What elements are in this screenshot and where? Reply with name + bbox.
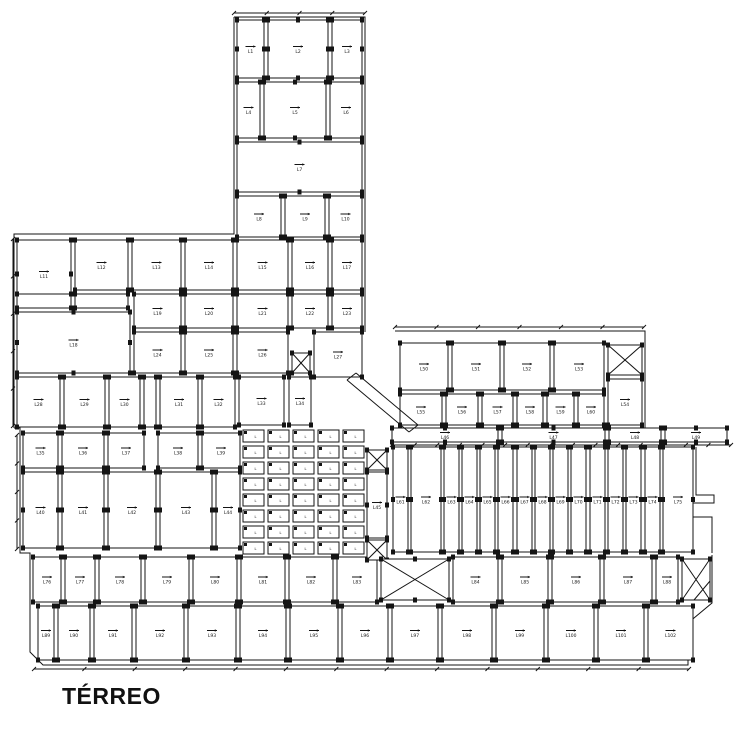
grid-cell: L bbox=[318, 526, 339, 538]
grid-cell: L bbox=[318, 446, 339, 458]
column-marker bbox=[290, 238, 294, 243]
grid-cell: L bbox=[318, 510, 339, 522]
room-label: L95 bbox=[310, 633, 318, 639]
column-marker bbox=[606, 423, 610, 428]
column-marker bbox=[103, 425, 107, 430]
column-marker bbox=[235, 18, 239, 23]
column-marker bbox=[286, 292, 290, 297]
column-marker bbox=[596, 604, 600, 609]
room-label: L8 bbox=[256, 217, 262, 223]
column-marker bbox=[546, 604, 550, 609]
room: L33 bbox=[237, 375, 286, 428]
column-marker bbox=[451, 600, 455, 605]
room-label: L18 bbox=[69, 343, 77, 349]
room-label: L bbox=[280, 547, 282, 551]
column-marker bbox=[191, 600, 195, 605]
column-marker bbox=[179, 292, 183, 297]
column-marker bbox=[386, 658, 390, 663]
column-marker bbox=[588, 550, 592, 555]
room: L2 bbox=[266, 18, 330, 81]
column-marker bbox=[326, 47, 330, 52]
room: L78 bbox=[97, 555, 143, 605]
room: L44 bbox=[214, 470, 242, 551]
grid-cell: L bbox=[243, 510, 264, 522]
room-label: L74 bbox=[648, 500, 656, 506]
column-marker bbox=[550, 600, 554, 605]
column-marker bbox=[725, 440, 729, 445]
column-marker bbox=[360, 80, 364, 85]
column-marker bbox=[606, 497, 610, 502]
room-label: L bbox=[255, 531, 257, 535]
column-marker bbox=[498, 341, 502, 346]
room-label: L35 bbox=[36, 451, 44, 457]
column-marker bbox=[134, 604, 138, 609]
column-marker bbox=[340, 658, 344, 663]
column-marker bbox=[262, 47, 266, 52]
room-label: L28 bbox=[34, 402, 42, 408]
column-marker bbox=[379, 598, 383, 603]
column-marker bbox=[639, 550, 643, 555]
column-marker bbox=[183, 371, 187, 376]
room-label: L60 bbox=[587, 410, 595, 416]
room-label: L82 bbox=[307, 580, 315, 586]
room-label: L92 bbox=[156, 633, 164, 639]
column-marker bbox=[379, 557, 383, 562]
column-marker bbox=[460, 497, 464, 502]
grid-cell: L bbox=[318, 494, 339, 506]
room: L47 bbox=[500, 426, 607, 445]
column-marker bbox=[186, 658, 190, 663]
room: L9 bbox=[283, 194, 327, 240]
column-marker bbox=[36, 604, 40, 609]
grid-cell: L bbox=[318, 542, 339, 554]
column-marker bbox=[551, 550, 555, 555]
column-marker bbox=[326, 18, 330, 23]
grid-cell: L bbox=[343, 542, 364, 554]
room-label: L80 bbox=[211, 580, 219, 586]
room: L65 bbox=[478, 445, 497, 555]
room-label: L83 bbox=[353, 580, 361, 586]
column-marker bbox=[480, 423, 484, 428]
column-marker bbox=[502, 388, 506, 393]
column-marker bbox=[624, 497, 628, 502]
column-marker bbox=[106, 508, 110, 513]
grid-cell: L bbox=[268, 430, 289, 442]
column-marker bbox=[97, 600, 101, 605]
room: L24 bbox=[132, 330, 183, 376]
column-marker bbox=[139, 555, 143, 560]
dimension-line bbox=[32, 667, 691, 671]
column-marker bbox=[360, 18, 364, 23]
column-marker bbox=[183, 292, 187, 297]
column-marker bbox=[266, 76, 270, 81]
column-marker bbox=[52, 658, 56, 663]
room: L95 bbox=[288, 604, 340, 663]
column-marker bbox=[606, 343, 610, 348]
column-marker bbox=[139, 600, 143, 605]
column-marker bbox=[460, 550, 464, 555]
room-label: L89 bbox=[42, 633, 50, 639]
room: L66 bbox=[496, 445, 515, 555]
column-marker bbox=[533, 550, 537, 555]
room-label: L32 bbox=[214, 402, 222, 408]
column-marker bbox=[235, 47, 239, 52]
room: L27 bbox=[312, 330, 364, 380]
column-marker bbox=[106, 431, 110, 436]
column-marker bbox=[238, 546, 242, 551]
room-label: L bbox=[280, 435, 282, 439]
column-marker bbox=[680, 557, 684, 562]
column-marker bbox=[60, 470, 64, 475]
column-marker bbox=[309, 423, 313, 428]
room-label: L24 bbox=[153, 353, 161, 359]
column-marker bbox=[15, 375, 19, 380]
room-label: L47 bbox=[549, 435, 557, 441]
column-marker bbox=[93, 555, 97, 560]
dimension-line bbox=[393, 325, 646, 329]
column-marker bbox=[239, 555, 243, 560]
column-marker bbox=[691, 604, 695, 609]
room: L93 bbox=[186, 604, 238, 663]
column-marker bbox=[102, 431, 106, 436]
room-label: L bbox=[330, 515, 332, 519]
column-marker bbox=[290, 292, 294, 297]
grid-cell: L bbox=[243, 430, 264, 442]
column-marker bbox=[126, 292, 130, 297]
room: L52 bbox=[502, 341, 552, 393]
column-marker bbox=[447, 557, 451, 562]
room-label: L bbox=[305, 515, 307, 519]
column-marker bbox=[266, 47, 270, 52]
room: L49 bbox=[663, 426, 729, 445]
room: L80 bbox=[191, 555, 239, 605]
column-marker bbox=[235, 292, 239, 297]
room: L45 bbox=[365, 470, 389, 541]
column-marker bbox=[545, 392, 549, 397]
column-marker bbox=[360, 47, 364, 52]
room-label: L17 bbox=[343, 265, 351, 271]
room-label: L94 bbox=[259, 633, 267, 639]
room: L102 bbox=[646, 604, 695, 663]
column-marker bbox=[545, 423, 549, 428]
room: L82 bbox=[287, 555, 335, 605]
room-label: L2 bbox=[295, 49, 301, 55]
column-marker bbox=[200, 466, 204, 471]
column-marker bbox=[210, 508, 214, 513]
column-marker bbox=[130, 658, 134, 663]
column-marker bbox=[515, 392, 519, 397]
room-label: L12 bbox=[97, 265, 105, 271]
column-marker bbox=[15, 292, 19, 297]
column-marker bbox=[546, 658, 550, 663]
room bbox=[15, 292, 73, 311]
room: L61 bbox=[391, 445, 410, 555]
column-marker bbox=[385, 468, 389, 473]
column-marker bbox=[288, 658, 292, 663]
column-marker bbox=[36, 658, 40, 663]
column-marker bbox=[542, 604, 546, 609]
column-marker bbox=[92, 658, 96, 663]
column-marker bbox=[552, 388, 556, 393]
column-marker bbox=[238, 470, 242, 475]
column-marker bbox=[365, 448, 369, 453]
grid-cell: L bbox=[243, 542, 264, 554]
column-marker bbox=[326, 238, 330, 243]
room: L13 bbox=[130, 238, 183, 293]
room: L74 bbox=[643, 445, 662, 555]
room: L35 bbox=[21, 431, 60, 471]
room: L57 bbox=[480, 392, 515, 428]
column-marker bbox=[375, 600, 379, 605]
column-marker bbox=[511, 392, 515, 397]
room: L18 bbox=[15, 310, 132, 376]
column-marker bbox=[69, 238, 73, 243]
room-label: L81 bbox=[259, 580, 267, 586]
column-marker bbox=[646, 604, 650, 609]
column-marker bbox=[542, 658, 546, 663]
grid-cell: L bbox=[343, 462, 364, 474]
column-marker bbox=[440, 658, 444, 663]
stair-shaft-x bbox=[606, 343, 644, 378]
column-marker bbox=[511, 550, 515, 555]
room: L70 bbox=[569, 445, 588, 555]
grid-cell: L bbox=[293, 526, 314, 538]
column-marker bbox=[21, 546, 25, 551]
room: L60 bbox=[576, 392, 606, 428]
room-label: L73 bbox=[629, 500, 637, 506]
column-marker bbox=[676, 555, 680, 560]
room: L62 bbox=[409, 445, 443, 555]
column-marker bbox=[258, 136, 262, 141]
room-label: L10 bbox=[341, 217, 349, 223]
column-marker bbox=[602, 600, 606, 605]
grid-cell: L bbox=[293, 478, 314, 490]
column-marker bbox=[546, 555, 550, 560]
column-marker bbox=[233, 375, 237, 380]
room: L25 bbox=[183, 330, 235, 376]
column-marker bbox=[442, 497, 446, 502]
column-marker bbox=[72, 371, 76, 376]
column-marker bbox=[500, 440, 504, 445]
column-marker bbox=[196, 425, 200, 430]
column-marker bbox=[293, 136, 297, 141]
room-label: L bbox=[305, 467, 307, 471]
room-label: L45 bbox=[373, 505, 381, 511]
room-label: L bbox=[255, 435, 257, 439]
column-marker bbox=[15, 272, 19, 277]
column-marker bbox=[234, 658, 238, 663]
column-marker bbox=[498, 388, 502, 393]
room: L89 bbox=[36, 604, 56, 663]
room: L50 bbox=[398, 341, 450, 393]
room-label: L bbox=[330, 467, 332, 471]
column-marker bbox=[290, 371, 294, 376]
room-label: L100 bbox=[565, 633, 576, 639]
column-marker bbox=[154, 425, 158, 430]
column-marker bbox=[446, 341, 450, 346]
room-label: L bbox=[305, 547, 307, 551]
room-label: L55 bbox=[417, 410, 425, 416]
column-marker bbox=[602, 341, 606, 346]
room: L85 bbox=[500, 555, 550, 605]
column-marker bbox=[132, 292, 136, 297]
column-marker bbox=[59, 555, 63, 560]
column-marker bbox=[15, 310, 19, 315]
room-label: L39 bbox=[217, 451, 225, 457]
column-marker bbox=[551, 497, 555, 502]
room-label: L26 bbox=[258, 353, 266, 359]
column-marker bbox=[511, 423, 515, 428]
room-label: L9 bbox=[302, 217, 308, 223]
column-marker bbox=[576, 392, 580, 397]
column-marker bbox=[279, 235, 283, 240]
column-marker bbox=[330, 292, 334, 297]
column-marker bbox=[132, 330, 136, 335]
column-marker bbox=[515, 423, 519, 428]
column-marker bbox=[639, 497, 643, 502]
column-marker bbox=[237, 375, 241, 380]
room-label: L4 bbox=[246, 110, 252, 116]
room: L51 bbox=[450, 341, 502, 393]
column-marker bbox=[607, 440, 611, 445]
grid-cell: L bbox=[268, 462, 289, 474]
room-label: L bbox=[305, 451, 307, 455]
column-marker bbox=[398, 341, 402, 346]
column-marker bbox=[511, 497, 515, 502]
column-marker bbox=[21, 470, 25, 475]
grid-cell: L bbox=[343, 478, 364, 490]
room: L75 bbox=[661, 445, 695, 555]
column-marker bbox=[126, 238, 130, 243]
column-marker bbox=[308, 371, 312, 376]
stair-shaft-x bbox=[680, 557, 712, 603]
column-marker bbox=[106, 470, 110, 475]
room-label: L7 bbox=[297, 167, 303, 173]
column-marker bbox=[444, 392, 448, 397]
column-marker bbox=[598, 555, 602, 560]
column-marker bbox=[496, 497, 500, 502]
column-marker bbox=[130, 238, 134, 243]
room-label: L21 bbox=[258, 311, 266, 317]
dimension-line bbox=[232, 11, 367, 15]
column-marker bbox=[102, 470, 106, 475]
room: L3 bbox=[330, 18, 364, 81]
room-label: L49 bbox=[692, 435, 700, 441]
column-marker bbox=[650, 555, 654, 560]
column-marker bbox=[496, 550, 500, 555]
column-marker bbox=[130, 604, 134, 609]
room: L46 bbox=[390, 426, 500, 445]
room: L4 bbox=[235, 80, 262, 141]
room-label: L52 bbox=[523, 367, 531, 373]
room-label: L bbox=[305, 531, 307, 535]
grid-cell: L bbox=[243, 526, 264, 538]
column-marker bbox=[331, 555, 335, 560]
column-marker bbox=[602, 555, 606, 560]
column-marker bbox=[238, 431, 242, 436]
room-label: L56 bbox=[458, 410, 466, 416]
room-label: L bbox=[355, 499, 357, 503]
column-marker bbox=[385, 503, 389, 508]
column-marker bbox=[15, 425, 19, 430]
column-marker bbox=[340, 604, 344, 609]
column-marker bbox=[360, 194, 364, 199]
room-label: L33 bbox=[257, 401, 265, 407]
column-marker bbox=[158, 546, 162, 551]
column-marker bbox=[603, 440, 607, 445]
room-label: L86 bbox=[572, 580, 580, 586]
room: L100 bbox=[546, 604, 596, 663]
room-label: L bbox=[255, 483, 257, 487]
room: L69 bbox=[551, 445, 570, 555]
column-marker bbox=[663, 426, 667, 431]
room: L81 bbox=[239, 555, 287, 605]
column-marker bbox=[390, 426, 394, 431]
column-marker bbox=[365, 538, 369, 543]
stair-shaft-x bbox=[290, 351, 312, 376]
column-marker bbox=[92, 604, 96, 609]
column-marker bbox=[214, 470, 218, 475]
room-label: L15 bbox=[258, 265, 266, 271]
room bbox=[73, 292, 130, 311]
column-marker bbox=[496, 555, 500, 560]
room-label: L43 bbox=[182, 510, 190, 516]
column-marker bbox=[154, 470, 158, 475]
room: L10 bbox=[327, 194, 364, 240]
column-marker bbox=[606, 550, 610, 555]
room-label: L91 bbox=[109, 633, 117, 639]
column-marker bbox=[360, 330, 364, 335]
room: L96 bbox=[340, 604, 390, 663]
column-marker bbox=[179, 330, 183, 335]
column-marker bbox=[287, 555, 291, 560]
column-marker bbox=[102, 508, 106, 513]
grid-cell: L bbox=[293, 462, 314, 474]
column-marker bbox=[128, 310, 132, 315]
room-label: L bbox=[255, 547, 257, 551]
room: L38 bbox=[156, 431, 200, 471]
column-marker bbox=[231, 238, 235, 243]
column-marker bbox=[592, 658, 596, 663]
room: L97 bbox=[390, 604, 440, 663]
stair-shaft-x bbox=[365, 448, 389, 473]
column-marker bbox=[56, 658, 60, 663]
room-label: L46 bbox=[441, 435, 449, 441]
column-marker bbox=[262, 80, 266, 85]
column-marker bbox=[88, 604, 92, 609]
column-marker bbox=[451, 555, 455, 560]
column-marker bbox=[290, 326, 294, 331]
room-label: L bbox=[355, 451, 357, 455]
column-marker bbox=[200, 425, 204, 430]
column-marker bbox=[233, 425, 237, 430]
room: L48 bbox=[607, 426, 663, 445]
column-marker bbox=[235, 80, 239, 85]
column-marker bbox=[500, 555, 504, 560]
column-marker bbox=[296, 18, 300, 23]
column-marker bbox=[541, 392, 545, 397]
room: L77 bbox=[63, 555, 97, 605]
room-label: L34 bbox=[296, 401, 304, 407]
column-marker bbox=[335, 555, 339, 560]
column-marker bbox=[191, 555, 195, 560]
column-marker bbox=[298, 190, 302, 195]
column-marker bbox=[31, 555, 35, 560]
column-marker bbox=[290, 351, 294, 356]
column-marker bbox=[142, 425, 146, 430]
column-marker bbox=[210, 546, 214, 551]
column-marker bbox=[691, 658, 695, 663]
